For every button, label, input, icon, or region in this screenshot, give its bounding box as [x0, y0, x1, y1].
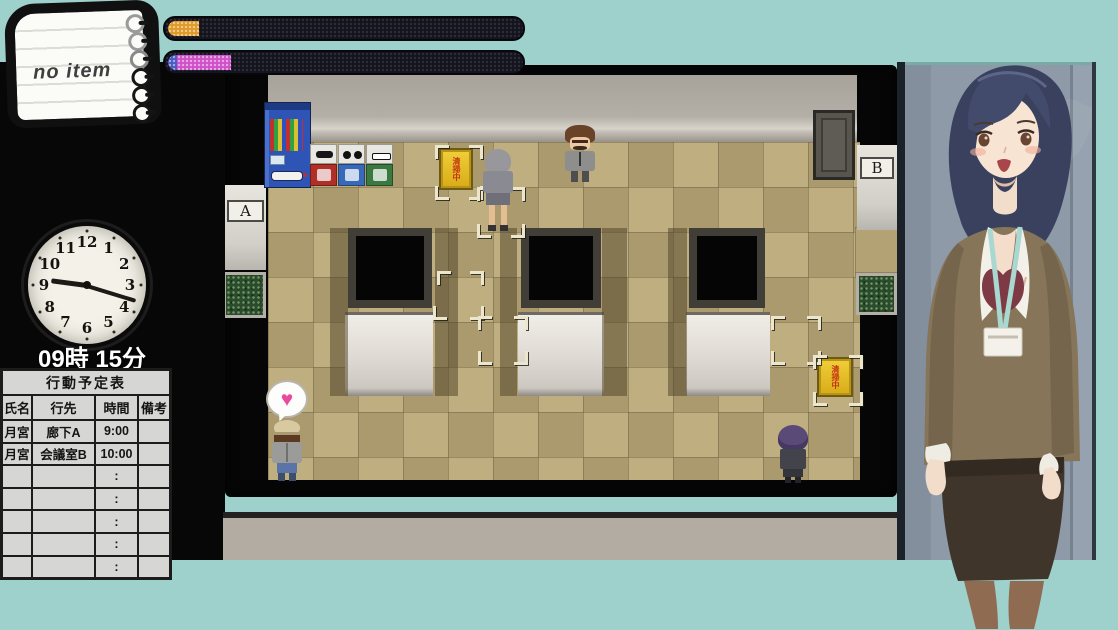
npc-gray-shirt	[483, 171, 513, 193]
player-jeans	[277, 463, 297, 473]
pillar-shadow	[330, 228, 348, 396]
gauge-fill	[168, 55, 177, 70]
npc-purple-shoe	[785, 477, 791, 483]
npc-gray-head	[485, 149, 511, 173]
clock-number: 10	[39, 255, 60, 273]
game-screen: A B	[0, 0, 1118, 630]
door-a-sign: A	[227, 200, 264, 222]
schedule-cell	[138, 533, 170, 556]
clock-tick	[39, 311, 42, 314]
npc-gray-shoe	[488, 225, 496, 231]
npc-suited-man[interactable]	[563, 125, 597, 183]
clock-number: 6	[82, 319, 92, 337]
schedule-row: :	[2, 533, 170, 556]
npc-gray-leg	[489, 205, 495, 225]
cleaning-sign-right-text: 清掃中	[831, 365, 839, 389]
clock-number: 8	[45, 298, 55, 316]
room-opening-2[interactable]	[521, 228, 601, 308]
cursor-bracket	[514, 351, 528, 365]
recycle-bins[interactable]	[310, 144, 394, 186]
east-floor-patch	[855, 227, 897, 277]
clock-tick	[113, 330, 116, 333]
schedule-header-cell: 行先	[32, 395, 95, 420]
cursor-bracket	[514, 316, 528, 330]
bin-slot-icon	[316, 151, 333, 158]
gauge-top	[163, 16, 525, 41]
schedule-header-cell: 時間	[95, 395, 138, 420]
schedule-cell: 会議室B	[32, 443, 95, 466]
schedule-cell	[2, 488, 32, 511]
clock-number: 9	[39, 276, 49, 294]
analog-clock: 123456789101112	[24, 222, 150, 348]
vending-machine-panel	[270, 155, 285, 165]
bin-holes-icon	[338, 144, 365, 164]
schedule-cell: :	[95, 556, 138, 579]
schedule-cell	[32, 556, 95, 579]
vending-machine-display	[270, 119, 303, 151]
schedule-cell	[2, 510, 32, 533]
room-front-wall-1	[345, 312, 433, 396]
schedule-cell	[32, 510, 95, 533]
npc-gray-shorts	[486, 193, 510, 205]
room-opening-3[interactable]	[689, 228, 765, 308]
npc-man-leg	[582, 171, 589, 182]
lower-wall-band	[223, 512, 897, 560]
gauge-fill	[168, 21, 199, 36]
cursor-bracket	[478, 316, 492, 330]
clock-tick	[132, 311, 135, 314]
schedule-cell	[2, 465, 32, 488]
schedule-table: 行動予定表氏名行先時間備考月宮廊下A9:00月宮会議室B10:00:::::	[0, 368, 172, 580]
notepad-text: no item	[20, 59, 125, 86]
cursor-bracket	[849, 355, 863, 369]
schedule-cell: 9:00	[95, 420, 138, 443]
item-notepad[interactable]: no item	[4, 0, 162, 129]
pillar-shadow	[602, 228, 627, 396]
bin-base-blue	[338, 164, 365, 186]
clock-center-cap	[83, 281, 91, 289]
vending-machine-slot	[271, 171, 303, 181]
cursor-bracket	[435, 145, 449, 159]
clock-tick	[86, 230, 89, 233]
clock-number: 2	[119, 255, 129, 273]
clock-tick	[113, 237, 116, 240]
schedule-cell: 月宮	[2, 420, 32, 443]
corridor-floor[interactable]	[268, 142, 860, 480]
door-a-alcove[interactable]	[225, 185, 266, 270]
clock-tick	[132, 257, 135, 260]
door-b-label: B	[871, 159, 882, 177]
plant-right	[856, 273, 897, 315]
schedule-header-cell: 氏名	[2, 395, 32, 420]
vending-machine-light	[303, 173, 307, 177]
schedule-cell	[2, 533, 32, 556]
schedule-header-cell: 備考	[138, 395, 170, 420]
vending-machine-top	[265, 103, 310, 110]
cursor-bracket	[470, 271, 484, 285]
gauge-fill	[177, 55, 232, 70]
heart-icon: ♥	[281, 389, 293, 410]
schedule-cell: :	[95, 465, 138, 488]
player-leg	[289, 473, 296, 481]
cursor-bracket	[849, 392, 863, 406]
bin-lid	[310, 144, 337, 164]
schedule-header-row: 氏名行先時間備考	[2, 395, 170, 420]
npc-man-beard	[573, 146, 587, 150]
plant-left	[225, 272, 266, 318]
cursor-bracket	[771, 351, 785, 365]
schedule-row: 月宮廊下A9:00	[2, 420, 170, 443]
player-character[interactable]	[271, 420, 303, 482]
npc-purple-pants	[783, 469, 803, 477]
bin-lid	[366, 144, 393, 164]
cursor-bracket	[813, 355, 827, 369]
character-portrait-tsukimiya	[900, 28, 1105, 630]
schedule-cell	[2, 556, 32, 579]
clock-tick	[140, 284, 143, 287]
door-a-label: A	[240, 202, 251, 220]
cursor-bracket	[433, 306, 447, 320]
schedule-row: :	[2, 465, 170, 488]
cursor-bracket	[478, 351, 492, 365]
pillar-shadow	[500, 228, 517, 396]
schedule-cell	[138, 443, 170, 466]
vending-machine[interactable]	[264, 102, 311, 188]
player-jacket-seam	[286, 443, 288, 462]
elevator-door[interactable]	[813, 110, 855, 180]
schedule-row: :	[2, 556, 170, 579]
recycle-bin-paper[interactable]	[366, 144, 393, 186]
schedule-cell	[138, 488, 170, 511]
clock-number: 3	[125, 276, 135, 294]
schedule-cell: 月宮	[2, 443, 32, 466]
clock-number: 1	[103, 239, 113, 257]
schedule-cell: :	[95, 510, 138, 533]
schedule-cell: :	[95, 488, 138, 511]
schedule-row: :	[2, 510, 170, 533]
player-leg	[278, 473, 285, 481]
cursor-bracket	[813, 392, 827, 406]
schedule-cell: 廊下A	[32, 420, 95, 443]
map-viewport[interactable]: A B	[225, 65, 897, 497]
schedule-cell	[138, 420, 170, 443]
schedule-cell	[32, 533, 95, 556]
clock-number: 7	[60, 313, 70, 331]
recycle-bin-burnable[interactable]	[310, 144, 337, 186]
schedule-title: 行動予定表	[2, 370, 170, 395]
schedule-cell: 10:00	[95, 443, 138, 466]
npc-purple-shoe	[795, 477, 801, 483]
clock-tick	[39, 257, 42, 260]
gauge-bottom	[163, 50, 525, 75]
clock-tick	[59, 330, 62, 333]
room-front-wall-2	[518, 312, 604, 396]
door-b-sign: B	[860, 157, 894, 179]
cursor-bracket	[437, 271, 451, 285]
cursor-bracket	[435, 186, 449, 200]
cleaning-sign-top-text: 清掃中	[452, 157, 460, 181]
npc-purple-jacket	[780, 449, 806, 469]
cursor-bracket	[771, 316, 785, 330]
npc-man-leg	[571, 171, 578, 182]
bin-base-green	[366, 164, 393, 186]
clock-tick	[59, 237, 62, 240]
recycle-bin-cans[interactable]	[338, 144, 365, 186]
npc-purple-hair[interactable]	[777, 425, 809, 483]
npc-man-tie	[579, 152, 581, 166]
room-opening-1[interactable]	[348, 228, 432, 308]
schedule-cell	[32, 465, 95, 488]
schedule-cell	[138, 556, 170, 579]
clock-number: 12	[77, 233, 98, 251]
schedule-cell: :	[95, 533, 138, 556]
npc-purple-head	[778, 425, 808, 451]
bin-base-red	[310, 164, 337, 186]
schedule-row: :	[2, 488, 170, 511]
schedule-cell	[138, 510, 170, 533]
room-front-wall-3	[686, 312, 770, 396]
schedule-cell	[138, 465, 170, 488]
clock-number: 5	[103, 313, 113, 331]
npc-gray-student[interactable]	[481, 149, 515, 233]
npc-man-glasses	[572, 140, 588, 143]
cursor-bracket	[807, 316, 821, 330]
bin-slot-icon	[372, 153, 391, 160]
clock-number: 11	[55, 239, 76, 257]
npc-gray-leg	[501, 205, 507, 225]
clock-tick	[32, 284, 35, 287]
schedule-row: 月宮会議室B10:00	[2, 443, 170, 466]
npc-gray-shoe	[500, 225, 508, 231]
schedule-cell	[32, 488, 95, 511]
pillar-shadow	[668, 228, 687, 396]
